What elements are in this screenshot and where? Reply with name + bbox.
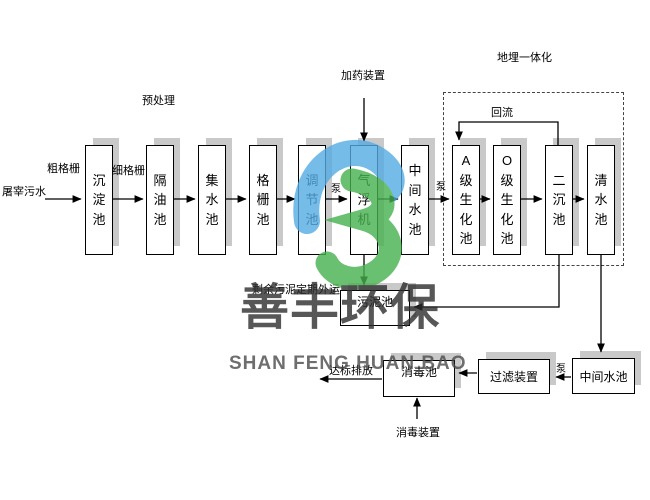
tank-label: 沉淀池 <box>92 171 106 230</box>
tank-screen: 格栅池 <box>249 145 277 255</box>
tank-label: 格栅池 <box>256 171 270 230</box>
tank-sludge: 污泥池 <box>340 290 410 326</box>
pump-label-1: 泵 <box>331 180 341 195</box>
pump-label-2: 泵 <box>436 178 446 193</box>
tank-label: 气浮机 <box>357 171 371 230</box>
tank-secondary-sed: 二沉池 <box>545 145 573 255</box>
disinfection-device-label: 消毒装置 <box>396 424 440 440</box>
tank-label: 中间水池 <box>579 368 627 385</box>
wastewater-process-flow-diagram: 沉淀池 隔油池 集水池 格栅池 调节池 气浮机 中间水池 A级生化池 O级生化池… <box>0 0 650 500</box>
device-filter: 过滤装置 <box>478 359 550 394</box>
tank-intermediate-top: 中间水池 <box>401 145 429 255</box>
tank-disinfection: 消毒池 <box>383 360 455 397</box>
sludge-out-label: 剩余污泥定期外运 <box>252 281 340 297</box>
pretreatment-label: 预处理 <box>142 92 175 108</box>
tank-sedimentation: 沉淀池 <box>85 145 113 255</box>
tank-label: 二沉池 <box>552 171 566 230</box>
tank-o-bio: O级生化池 <box>493 145 521 255</box>
tank-label: O级生化池 <box>500 151 514 249</box>
tank-regulating: 调节池 <box>298 145 326 255</box>
tank-oil-separation: 隔油池 <box>146 145 174 255</box>
coarse-screen-label: 粗格栅 <box>47 160 80 176</box>
tank-collection: 集水池 <box>198 145 226 255</box>
tank-label: 消毒池 <box>401 363 437 380</box>
influent-label: 屠宰污水 <box>2 183 46 199</box>
reflux-label: 回流 <box>491 104 513 120</box>
tank-air-flotation: 气浮机 <box>350 145 378 255</box>
tank-a-bio: A级生化池 <box>452 145 480 255</box>
tank-label: 污泥池 <box>357 293 393 310</box>
tank-label: 集水池 <box>205 171 219 230</box>
tank-intermediate-bottom: 中间水池 <box>572 358 635 394</box>
fine-screen-label: 细格栅 <box>112 162 145 178</box>
dosing-device-label: 加药装置 <box>341 67 385 83</box>
tank-label: 清水池 <box>594 171 608 230</box>
tank-label: 调节池 <box>305 171 319 230</box>
tank-clear-water: 清水池 <box>587 145 615 255</box>
pump-label-3: 泵 <box>556 360 566 375</box>
discharge-label: 达标排放 <box>329 362 373 378</box>
buried-integration-label: 地埋一体化 <box>497 49 552 65</box>
tank-label: 中间水池 <box>408 161 422 239</box>
tank-label: A级生化池 <box>459 151 473 249</box>
tank-label: 过滤装置 <box>490 368 538 385</box>
tank-label: 隔油池 <box>153 171 167 230</box>
